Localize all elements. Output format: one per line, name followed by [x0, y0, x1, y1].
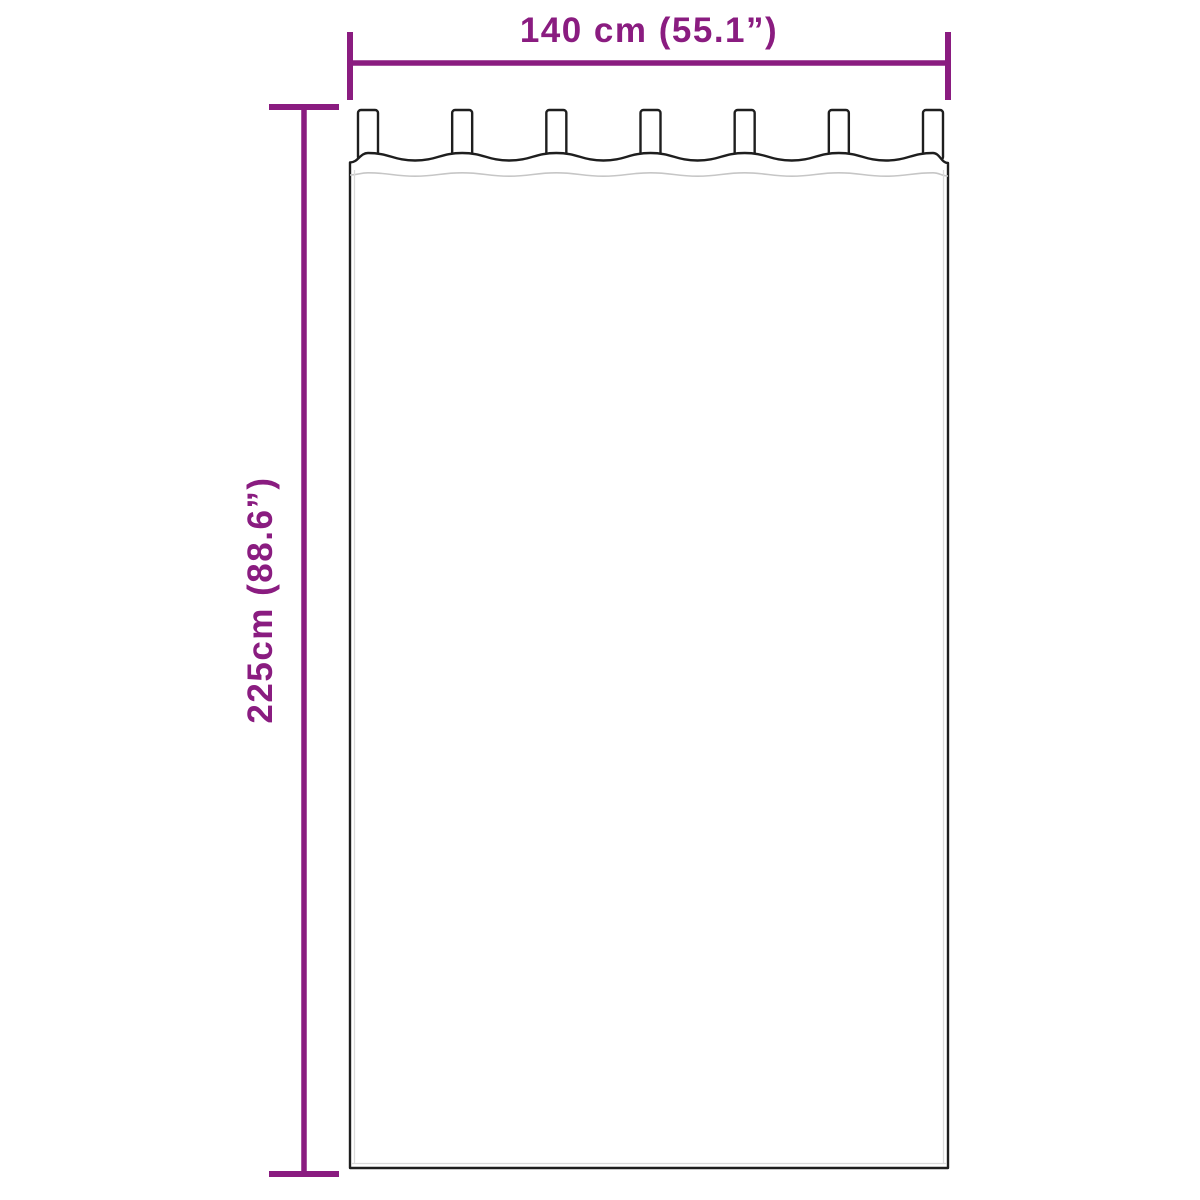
product-dimension-diagram: 140 cm (55.1”) 225cm (88.6”)	[0, 0, 1200, 1200]
curtain-dimension-drawing	[0, 0, 1200, 1200]
width-dimension-label: 140 cm (55.1”)	[350, 10, 948, 52]
curtain-illustration	[350, 110, 948, 1168]
height-dimension-label: 225cm (88.6”)	[241, 300, 281, 900]
curtain-body-outline	[350, 153, 948, 1168]
